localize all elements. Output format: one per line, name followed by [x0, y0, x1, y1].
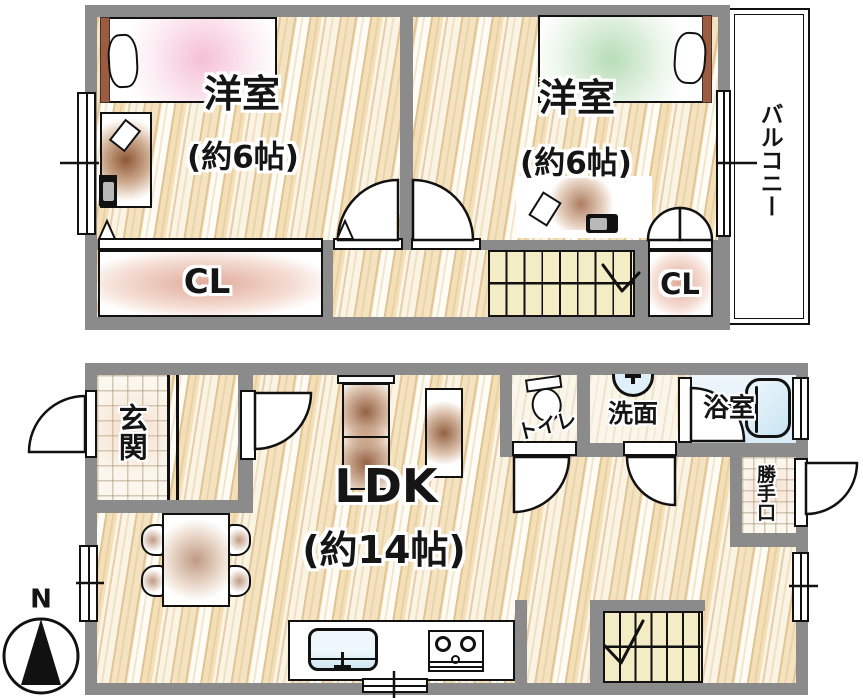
front-door-swing: [29, 396, 85, 452]
window: [716, 90, 731, 237]
room1-size-label: (約6帖): [187, 142, 299, 175]
window: [79, 545, 98, 622]
pillow: [107, 33, 140, 88]
wall-segment: [590, 600, 705, 611]
closet-sliding-door: [98, 238, 323, 250]
washroom-label: 洗面: [608, 401, 658, 427]
wall-segment: [590, 600, 603, 683]
entrance-step-line: [176, 375, 179, 500]
wall-segment: [85, 500, 253, 513]
wall-segment: [85, 363, 808, 375]
wall-segment: [730, 533, 796, 547]
wall-segment: [85, 317, 730, 330]
door-sill: [333, 238, 403, 250]
back-door-sill: [794, 458, 808, 527]
stove: [428, 630, 484, 672]
chair: [228, 565, 251, 597]
ldk-label: LDK: [334, 462, 437, 510]
closet-door-sill: [648, 238, 713, 250]
kitchen-window: [362, 678, 428, 693]
front-door-sill: [85, 390, 97, 458]
tv-screen: [590, 218, 607, 230]
chair: [141, 565, 164, 597]
bathroom-window: [792, 377, 809, 440]
room2-label: 洋室: [539, 79, 615, 119]
wall-segment: [323, 250, 333, 317]
wall-segment: [85, 683, 808, 695]
ldk-size-label: (約14帖): [302, 531, 466, 571]
dining-table: [162, 513, 230, 607]
door-sill: [411, 238, 481, 250]
bath-door-sill: [678, 377, 692, 443]
window: [77, 92, 96, 235]
wall-segment: [635, 240, 648, 317]
tv-screen: [103, 182, 114, 201]
bathroom-label: 浴室: [703, 395, 755, 422]
faucet: [334, 665, 351, 668]
back-door-swing: [806, 463, 857, 514]
closet-left-label: CL: [184, 265, 231, 301]
north-label: N: [30, 586, 52, 613]
washroom-door-sill: [623, 441, 677, 456]
chair: [228, 524, 251, 556]
window: [792, 552, 809, 622]
room1-label: 洋室: [204, 75, 280, 115]
chair: [141, 524, 164, 556]
back-door-label: 勝手口: [754, 465, 774, 522]
room2-size-label: (約6帖): [520, 148, 632, 181]
entrance-label: 玄関: [116, 403, 146, 461]
north-arrow: [4, 619, 78, 693]
balcony-label: バルコニー: [757, 103, 781, 218]
closet-right-label: CL: [660, 269, 700, 299]
stairs-lower: [603, 611, 703, 683]
stairs-upper: [488, 250, 635, 317]
wall-segment: [713, 240, 718, 317]
floor-plan: 洋室 (約6帖) 洋室 (約6帖) バルコニー CL CL 玄関 LDK (約1…: [0, 0, 863, 698]
wall-segment: [400, 17, 413, 250]
wall-segment: [515, 600, 527, 683]
bathtub-ledge: [755, 386, 758, 433]
hall-door-sill: [240, 390, 256, 460]
entrance-step-line: [167, 375, 170, 500]
